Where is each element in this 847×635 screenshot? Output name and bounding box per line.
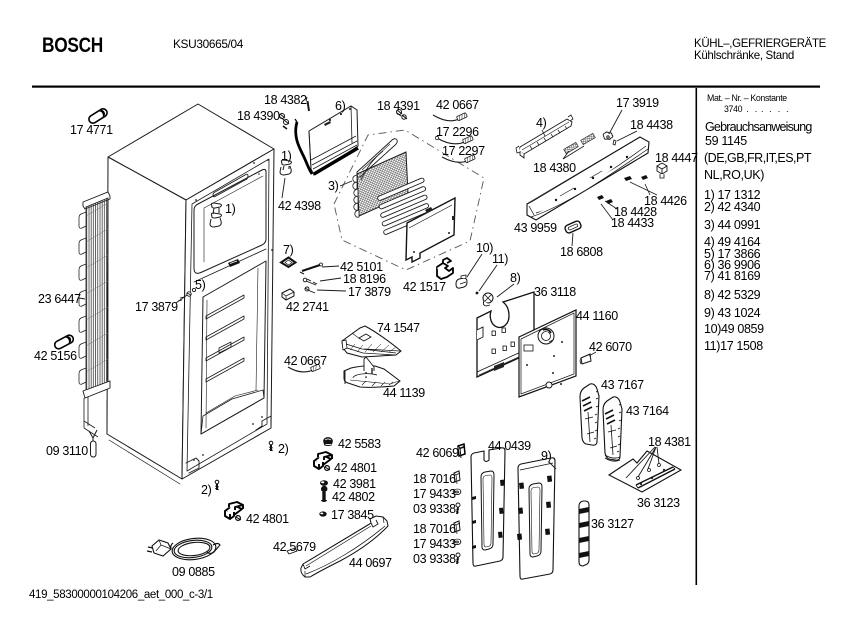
svg-text:42 1517: 42 1517 [403,280,446,294]
svg-text:3740 . . . . . .: 3740 . . . . . . [724,104,788,114]
svg-text:18 4447: 18 4447 [655,151,698,165]
svg-text:(DE,GB,FR,IT,ES,PT: (DE,GB,FR,IT,ES,PT [704,151,812,165]
svg-text:9) 43 1024: 9) 43 1024 [704,306,761,320]
svg-text:18 4390: 18 4390 [237,109,280,123]
svg-text:17 3879: 17 3879 [135,300,178,314]
svg-text:17 9433: 17 9433 [413,537,456,551]
svg-text:42 4398: 42 4398 [278,199,321,213]
svg-text:17 3919: 17 3919 [616,96,659,110]
svg-text:42 0667: 42 0667 [284,354,327,368]
svg-text:42 2741: 42 2741 [286,300,329,314]
svg-text:KSU30665/04: KSU30665/04 [173,37,244,51]
svg-text:44 0439: 44 0439 [488,439,531,453]
svg-text:18 4380: 18 4380 [533,161,576,175]
svg-text:44 1139: 44 1139 [383,386,425,400]
svg-text:09 0885: 09 0885 [172,565,215,579]
svg-text:6): 6) [335,99,346,113]
svg-text:Gebrauchsanweisung: Gebrauchsanweisung [705,120,812,134]
svg-text:NL,RO,UK): NL,RO,UK) [704,168,764,182]
svg-text:18 7016: 18 7016 [413,522,456,536]
svg-text:42 6069: 42 6069 [416,446,459,460]
svg-text:Kühlschränke, Stand: Kühlschränke, Stand [694,48,794,62]
svg-text:42 5156: 42 5156 [34,349,77,363]
svg-text:17 3845: 17 3845 [331,508,374,522]
svg-text:18 4438: 18 4438 [630,118,673,132]
svg-text:74 1547: 74 1547 [377,321,420,335]
svg-text:36 3118: 36 3118 [534,285,576,299]
svg-text:43 9959: 43 9959 [514,221,557,235]
svg-text:42 4802: 42 4802 [332,490,375,504]
svg-text:03 9338: 03 9338 [413,502,456,516]
svg-text:1): 1) [225,202,236,216]
svg-text:42 3981: 42 3981 [333,477,376,491]
svg-text:419_58300000104206_aet_000_c-3: 419_58300000104206_aet_000_c-3/1 [29,589,213,601]
svg-text:17 9433: 17 9433 [413,487,456,501]
svg-text:18 4381: 18 4381 [648,435,691,449]
svg-text:43 7164: 43 7164 [626,404,669,418]
svg-text:11): 11) [492,252,508,266]
svg-text:3): 3) [328,179,339,193]
svg-text:42 4801: 42 4801 [246,512,289,526]
svg-text:18 4433: 18 4433 [611,216,654,230]
svg-text:18 7016: 18 7016 [413,472,456,486]
svg-text:36 3123: 36 3123 [637,496,680,510]
svg-text:10)49 0859: 10)49 0859 [704,322,764,336]
svg-text:18 4382: 18 4382 [264,93,307,107]
svg-text:4): 4) [536,116,547,130]
svg-text:43 7167: 43 7167 [601,378,644,392]
svg-text:42 5583: 42 5583 [338,437,381,451]
svg-text:44 0697: 44 0697 [349,556,392,570]
svg-text:17 2296: 17 2296 [436,125,479,139]
svg-text:18 6808: 18 6808 [560,245,603,259]
svg-text:44 1160: 44 1160 [576,309,618,323]
svg-text:42 4801: 42 4801 [334,461,377,475]
svg-text:7) 41 8169: 7) 41 8169 [704,269,761,283]
svg-text:23 6447: 23 6447 [38,292,81,306]
svg-text:09 3110: 09 3110 [46,444,88,458]
svg-text:17 4771: 17 4771 [70,123,113,137]
svg-text:8) 42 5329: 8) 42 5329 [704,288,761,302]
svg-text:5): 5) [195,278,206,292]
svg-text:BOSCH: BOSCH [42,34,103,57]
svg-text:17 3879: 17 3879 [348,285,391,299]
svg-text:42 6070: 42 6070 [589,340,632,354]
svg-text:36 3127: 36 3127 [591,517,634,531]
svg-text:3) 44 0991: 3) 44 0991 [704,218,761,232]
svg-text:03 9338: 03 9338 [413,552,456,566]
svg-text:2): 2) [201,483,212,497]
svg-text:7): 7) [283,243,294,257]
svg-text:17 2297: 17 2297 [442,144,485,158]
svg-text:42 5679: 42 5679 [273,540,316,554]
svg-text:59 1145: 59 1145 [705,134,747,148]
svg-text:10): 10) [476,241,493,255]
svg-text:2): 2) [278,442,289,456]
svg-text:2) 42 4340: 2) 42 4340 [704,200,761,214]
svg-text:18 8196: 18 8196 [343,272,386,286]
svg-text:8): 8) [510,271,521,285]
svg-text:18 4391: 18 4391 [377,99,420,113]
svg-text:42 0667: 42 0667 [436,98,479,112]
svg-text:11)17 1508: 11)17 1508 [704,339,763,353]
svg-text:9): 9) [541,449,552,463]
svg-text:Mat. – Nr. – Konstante: Mat. – Nr. – Konstante [707,93,787,103]
